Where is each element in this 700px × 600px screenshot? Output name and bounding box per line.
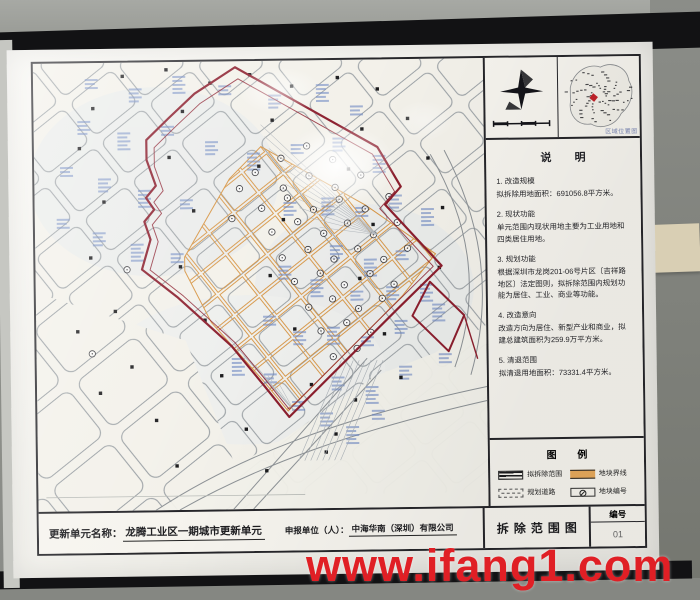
main-map (33, 58, 489, 512)
inset-map-label: 区域位置图 (605, 126, 638, 135)
compass-cell (485, 57, 559, 138)
parcel-number-swatch (570, 487, 595, 496)
notes-title: 说 明 (496, 148, 630, 166)
note-item: 3. 规划功能 根据深圳市龙岗201-06号片区〔吉祥路地区〕法定图则，拟拆除范… (497, 252, 632, 302)
notes-section: 说 明 1. 改造规模 拟拆除用地面积：691056.8平方米。 2. 现状功能… (486, 138, 644, 438)
location-inset-map: 区域位置图 (558, 56, 640, 137)
legend-title: 图 例 (498, 445, 636, 462)
info-panel: 区域位置图 说 明 1. 改造规模 拟拆除用地面积：691056.8平方米。 2… (483, 56, 645, 506)
planned-road-swatch (498, 488, 523, 497)
parcel-boundary-swatch (570, 469, 595, 478)
legend-item-demolition: 拟拆除范围 (498, 469, 565, 480)
number-label: 编号 (591, 506, 645, 523)
legend-item-number: 地块编号 (570, 486, 637, 497)
north-arrow-icon (485, 57, 558, 138)
note-item: 1. 改造规模 拟拆除用地面积：691056.8平方米。 (496, 174, 630, 200)
unit-name-label: 更新单元名称： (49, 525, 123, 541)
watermark-text: www.ifang1.com (306, 540, 673, 592)
applicant-label: 申报单位（人）： (285, 524, 349, 537)
drawing-sheet: 区域位置图 说 明 1. 改造规模 拟拆除用地面积：691056.8平方米。 2… (31, 54, 647, 556)
note-item: 2. 现状功能 单元范围内现状用地主要为工业用地和四类居住用地。 (497, 207, 631, 245)
legend-item-road: 规划道路 (498, 487, 565, 498)
unit-name-value: 龙腾工业区一期城市更新单元 (122, 522, 265, 541)
unit-name-cell: 更新单元名称： 龙腾工业区一期城市更新单元 (39, 511, 286, 554)
cadastral-map (33, 58, 489, 512)
legend-section: 图 例 拟拆除范围 地块界线 (490, 436, 645, 506)
note-item: 5. 清退范围 拟清退用地面积：73331.4平方米。 (499, 353, 633, 379)
city-location-map (558, 56, 640, 137)
photo-of-planning-board: 区域位置图 说 明 1. 改造规模 拟拆除用地面积：691056.8平方米。 2… (0, 0, 700, 600)
note-item: 4. 改造意向 改造方向为居住、新型产业和商业，拟建总建筑面积为259.9万平方… (498, 308, 632, 346)
demolition-boundary-swatch (498, 470, 523, 479)
wall-trim-strip (653, 223, 700, 273)
applicant-value: 中海华南（深圳）有限公司 (349, 521, 457, 536)
legend-item-parcel: 地块界线 (570, 468, 637, 479)
planning-board: 区域位置图 说 明 1. 改造规模 拟拆除用地面积：691056.8平方米。 2… (7, 42, 660, 578)
